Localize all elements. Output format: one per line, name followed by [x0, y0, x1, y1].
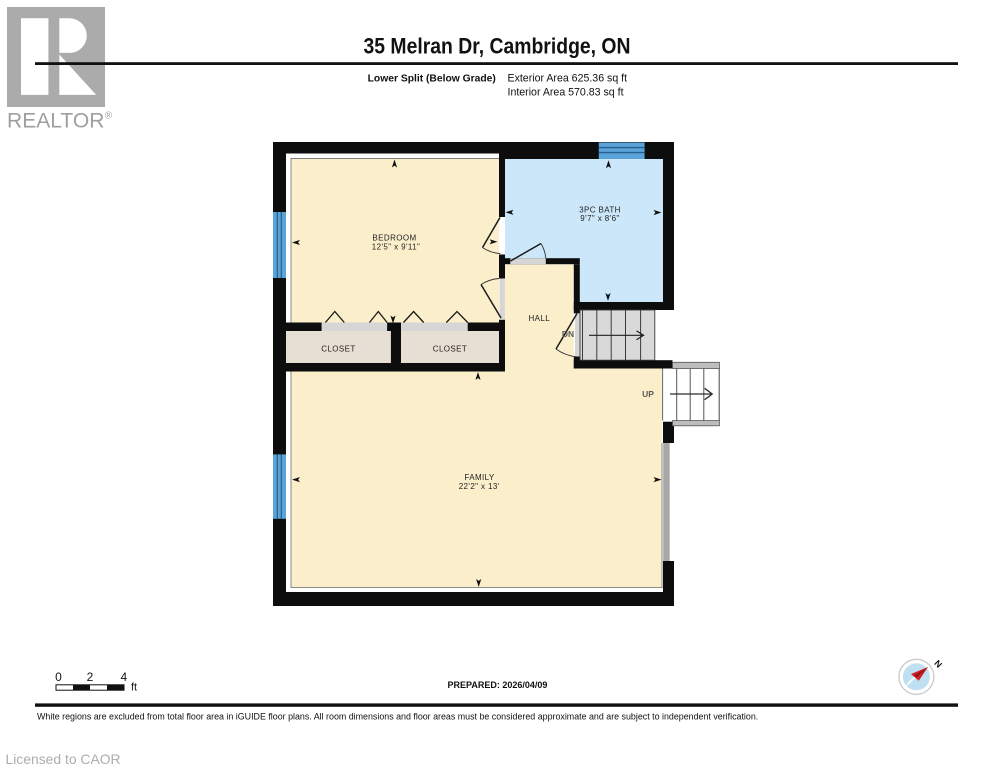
svg-text:Licensed to CAOR: Licensed to CAOR	[6, 751, 121, 767]
svg-text:HALL: HALL	[528, 314, 550, 323]
svg-text:Interior Area 570.83 sq ft: Interior Area 570.83 sq ft	[508, 87, 624, 99]
svg-text:FAMILY: FAMILY	[464, 473, 495, 482]
svg-text:®: ®	[105, 111, 113, 122]
svg-text:12'5" x 9'11": 12'5" x 9'11"	[372, 243, 420, 252]
svg-text:0: 0	[55, 670, 62, 684]
svg-text:4: 4	[121, 670, 128, 684]
svg-text:White regions are excluded fro: White regions are excluded from total fl…	[37, 711, 758, 721]
svg-text:2: 2	[87, 670, 94, 684]
svg-text:CLOSET: CLOSET	[321, 344, 355, 353]
svg-text:ft: ft	[131, 682, 137, 694]
svg-text:Lower Split (Below Grade): Lower Split (Below Grade)	[368, 74, 496, 85]
svg-text:BEDROOM: BEDROOM	[372, 233, 416, 242]
svg-text:Exterior Area 625.36 sq ft: Exterior Area 625.36 sq ft	[508, 73, 628, 85]
svg-text:9'7" x 8'6": 9'7" x 8'6"	[580, 214, 619, 223]
svg-text:22'2" x 13': 22'2" x 13'	[459, 482, 500, 491]
svg-text:REALTOR: REALTOR	[7, 109, 105, 133]
svg-text:DN: DN	[562, 329, 574, 339]
svg-text:UP: UP	[642, 389, 654, 399]
svg-text:35 Melran Dr, Cambridge, ON: 35 Melran Dr, Cambridge, ON	[364, 34, 631, 59]
svg-text:PREPARED: 2026/04/09: PREPARED: 2026/04/09	[448, 680, 548, 690]
svg-text:CLOSET: CLOSET	[433, 344, 467, 353]
